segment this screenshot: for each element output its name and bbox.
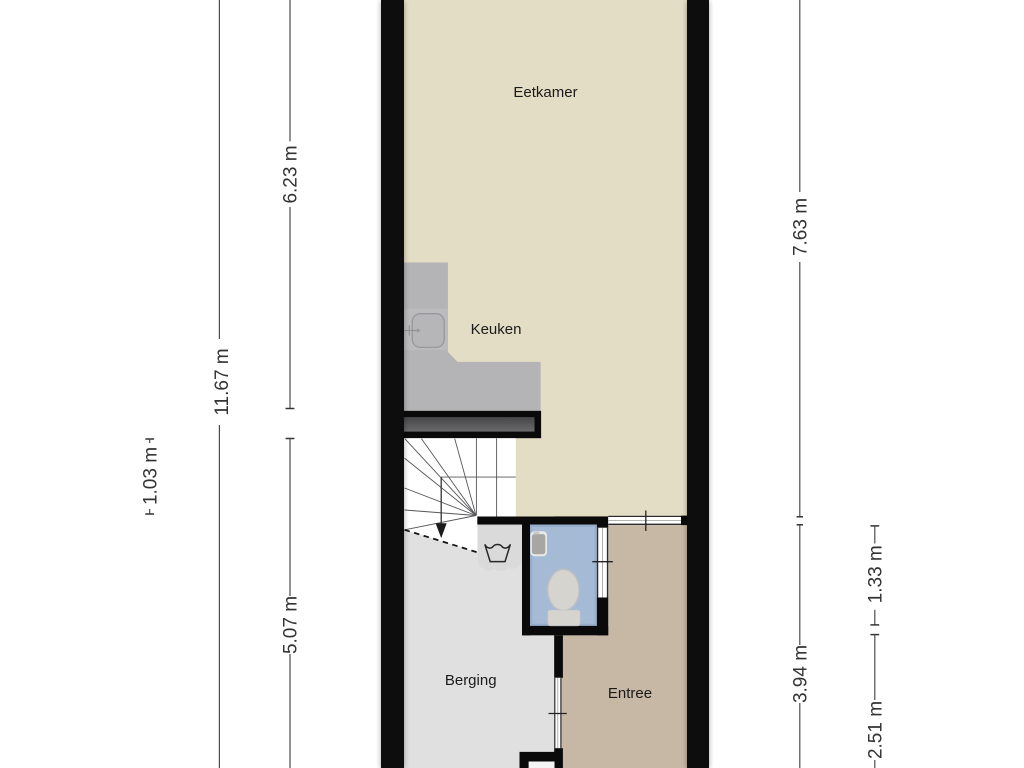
svg-text:7.63 m: 7.63 m bbox=[791, 198, 812, 256]
svg-text:Keuken: Keuken bbox=[471, 321, 522, 338]
svg-text:Berging: Berging bbox=[445, 672, 497, 689]
svg-text:3.94 m: 3.94 m bbox=[791, 645, 812, 703]
svg-text:Eetkamer: Eetkamer bbox=[513, 84, 577, 101]
svg-text:1.03 m: 1.03 m bbox=[140, 447, 161, 505]
svg-text:6.23 m: 6.23 m bbox=[281, 145, 302, 203]
svg-text:5.07 m: 5.07 m bbox=[281, 596, 302, 654]
svg-text:11.67 m: 11.67 m bbox=[212, 348, 233, 415]
svg-text:Entree: Entree bbox=[608, 685, 652, 702]
svg-text:2.51 m: 2.51 m bbox=[866, 701, 887, 759]
svg-text:1.33 m: 1.33 m bbox=[866, 545, 887, 603]
